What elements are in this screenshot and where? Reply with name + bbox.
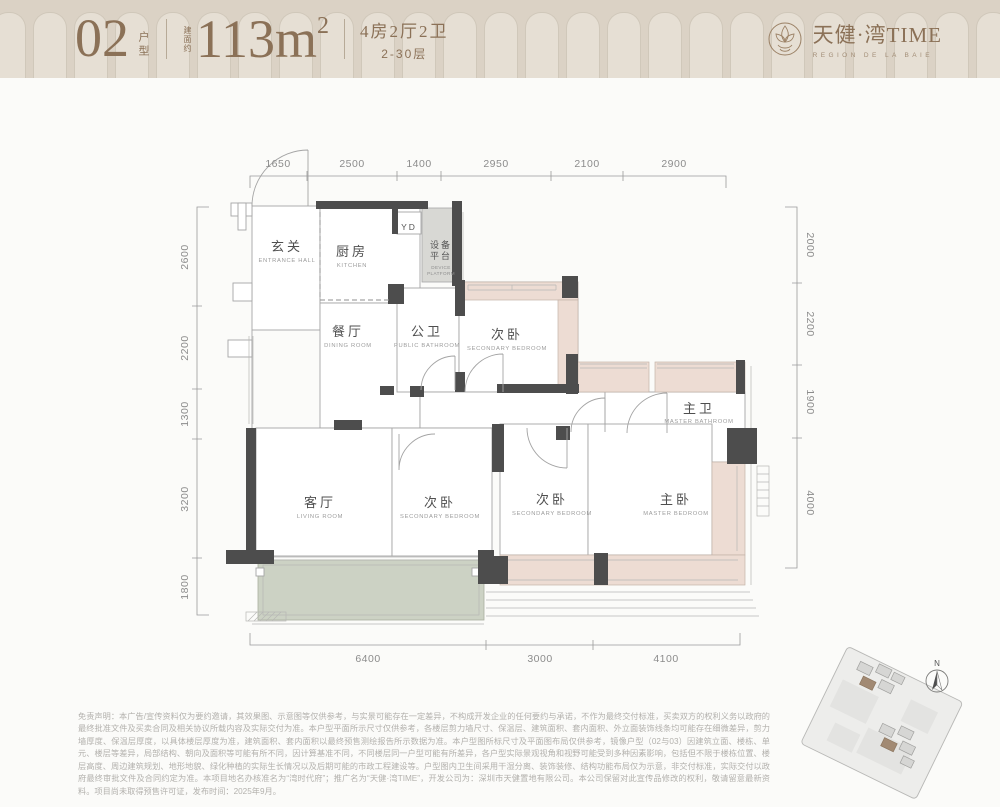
svg-text:PLATFORM: PLATFORM — [427, 271, 455, 276]
dim-label: 1300 — [179, 401, 191, 426]
dim-label: 2200 — [804, 311, 816, 336]
dim-label: 2950 — [483, 158, 508, 170]
area-block: 建面约 113m2 — [182, 17, 329, 61]
dim-label: 4100 — [653, 653, 678, 665]
dim-label: 2500 — [339, 158, 364, 170]
brand-text: 天健·湾TIME REGION DE LA BAIE — [813, 19, 942, 59]
room-label-bedroom-bl: 次卧 — [424, 495, 456, 510]
room-sublabel-entrance: ENTRANCE HALL — [258, 258, 315, 264]
dim-label: 4000 — [804, 490, 816, 515]
divider — [344, 19, 345, 59]
unit-block: 02 户型 — [75, 17, 151, 60]
brand-name: 天健·湾TIME — [813, 19, 942, 49]
room-sublabel-bedroom-bl: SECONDARY BEDROOM — [400, 514, 480, 520]
svg-text:平台: 平台 — [430, 250, 452, 261]
device-platform-label: 设备 — [430, 239, 452, 250]
dimensions-left: 2600 2200 1300 3200 1800 — [179, 207, 209, 615]
room-label-entrance: 玄关 — [271, 239, 303, 254]
brand-subtitle: REGION DE LA BAIE — [813, 52, 942, 59]
room-label-bedroom-bm: 次卧 — [536, 492, 568, 507]
room-sublabel-living: LIVING ROOM — [297, 514, 343, 520]
svg-text:DEVICE: DEVICE — [431, 265, 451, 270]
dim-label: 2100 — [574, 158, 599, 170]
dim-label: 6400 — [355, 653, 380, 665]
room-label-master-bath: 主卫 — [683, 401, 715, 416]
floors-line: 2-30层 — [360, 45, 449, 62]
room-label-kitchen: 厨房 — [336, 244, 368, 259]
north-label: N — [934, 659, 940, 668]
yd-label: YD — [401, 222, 417, 232]
dim-label: 1800 — [179, 574, 191, 599]
area-value: 113m2 — [196, 17, 329, 61]
dimensions-top: 1650 2500 1400 2950 2100 2900 — [250, 158, 726, 188]
dim-label: 2600 — [179, 244, 191, 269]
rooms-line: 4房2厅2卫 — [360, 17, 449, 42]
room-label-living: 客厅 — [304, 495, 336, 510]
dim-label: 2000 — [804, 232, 816, 257]
room-sublabel-master-bed: MASTER BEDROOM — [643, 511, 709, 517]
layout-block: 4房2厅2卫 2-30层 — [360, 17, 449, 62]
dimensions-right: 2000 2200 1900 4000 — [785, 207, 816, 568]
dim-label: 3200 — [179, 486, 191, 511]
room-sublabel-bedroom-top: SECONDARY BEDROOM — [467, 346, 547, 352]
area-exponent: 2 — [317, 13, 329, 39]
room-sublabel-public-bath: PUBLIC BATHROOM — [394, 343, 460, 349]
disclaimer-text: 免责声明：本广告/宣传资料仅为要约邀请，其效果图、示意图等仅供参考，与实景可能存… — [78, 711, 770, 798]
brand: 天健·湾TIME REGION DE LA BAIE — [766, 18, 942, 60]
floor-plan: 1650 2500 1400 2950 2100 2900 6400 3000 … — [0, 0, 1000, 807]
site-map: N — [801, 646, 963, 799]
room-sublabel-dining: DINING ROOM — [324, 343, 372, 349]
divider — [166, 19, 167, 59]
room-label-bedroom-top: 次卧 — [491, 327, 523, 342]
room-sublabel-bedroom-bm: SECONDARY BEDROOM — [512, 511, 592, 517]
room-sublabel-master-bath: MASTER BATHROOM — [664, 419, 733, 425]
area-prefix: 建面约 — [182, 26, 193, 53]
page: 02 户型 建面约 113m2 4房2厅2卫 2-30层 — [0, 0, 1000, 807]
dim-label: 1650 — [265, 158, 290, 170]
dim-label: 2900 — [661, 158, 686, 170]
dim-label: 3000 — [527, 653, 552, 665]
room-label-public-bath: 公卫 — [411, 324, 443, 339]
room-label-dining: 餐厅 — [332, 324, 364, 339]
unit-suffix: 户型 — [135, 31, 151, 59]
dim-label: 1400 — [406, 158, 431, 170]
dim-label: 2200 — [179, 335, 191, 360]
brand-emblem-icon — [766, 18, 804, 60]
unit-number: 02 — [75, 17, 129, 60]
room-label-master-bed: 主卧 — [660, 492, 692, 507]
dim-label: 1900 — [804, 389, 816, 414]
room-sublabel-kitchen: KITCHEN — [337, 263, 367, 269]
dimensions-bottom: 6400 3000 4100 — [250, 633, 740, 665]
